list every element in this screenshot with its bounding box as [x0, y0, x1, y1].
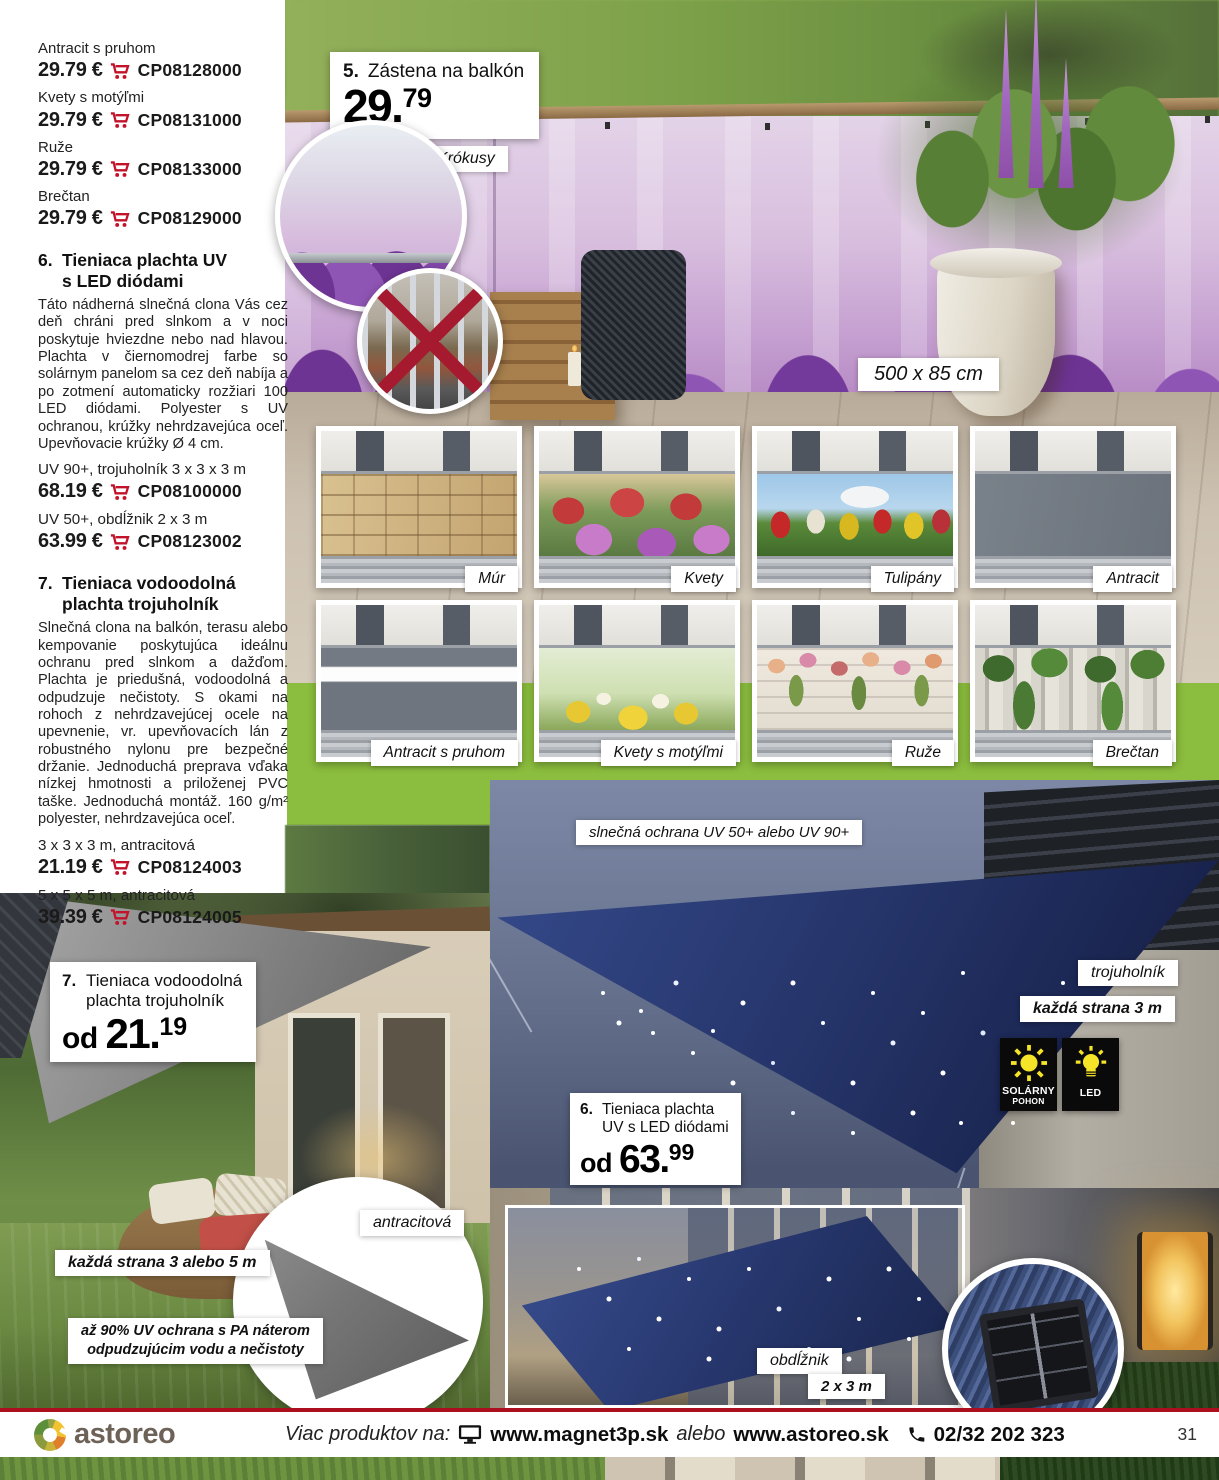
thumb-screen-antracit [975, 471, 1171, 556]
uv-protection-label: až 90% UV ochrana s PA náteromodpudzujúc… [68, 1318, 323, 1364]
uv-range-label: slnečná ochrana UV 50+ alebo UV 90+ [576, 820, 862, 845]
price: 63.99 € [38, 530, 103, 553]
astoreo-logo-icon [34, 1419, 66, 1451]
sliver-dark-grass [1000, 1457, 1219, 1480]
price: 68.19 € [38, 480, 103, 503]
footer-prefix: Viac produktov na: [285, 1423, 450, 1446]
price: 29.79 € [38, 207, 103, 230]
shape-label-trojuholnik: trojuholník [1078, 960, 1178, 986]
hero-candle [568, 352, 581, 386]
thumb-tulipany: Tulipány [752, 426, 958, 588]
price-row: 63.99 € CP08123002 [38, 530, 288, 553]
photo-led-sail-dusk: slnečná ochrana UV 50+ alebo UV 90+ troj… [490, 780, 1219, 1408]
price: od 63.99 [580, 1141, 729, 1178]
thumb-kvety-s-motylmi: Kvety s motýľmi [534, 600, 740, 762]
thumb-screen-tulipany [757, 471, 953, 556]
left-text-column: Antracit s pruhom 29.79 € CP08128000 Kve… [38, 40, 288, 936]
price: od 21.19 [62, 1014, 242, 1054]
solar-panel [979, 1298, 1099, 1408]
thumb-house-top [975, 605, 1171, 645]
thumb-antracit-s-pruhom: Antracit s pruhom [316, 600, 522, 762]
thumb-screen-kvety [539, 471, 735, 556]
anthracite-triangle-sail [247, 1217, 469, 1407]
section-title: 7. Tieniaca vodoodolnáplachta trojuholní… [38, 573, 288, 615]
cart-icon[interactable] [110, 111, 131, 129]
thumb-kvety: Kvety [534, 426, 740, 588]
product-title: Tieniaca plachtaUV s LED diódami [602, 1101, 729, 1138]
phone-icon [907, 1425, 926, 1444]
variant-spec: UV 90+, trojuholník 3 x 3 x 3 m [38, 461, 288, 478]
product-number: 7. [62, 971, 86, 1011]
price-badge-7: 7. Tieniaca vodoodolnáplachta trojuholní… [50, 962, 256, 1062]
section-description: Slnečná clona na balkón, terasu alebo ke… [38, 620, 288, 828]
color-label-antracitova: antracitová [360, 1210, 464, 1236]
thumb-screen-brectan [975, 645, 1171, 730]
price-badge-6: 6. Tieniaca plachtaUV s LED diódami od 6… [570, 1093, 741, 1185]
thumb-antracit: Antracit [970, 426, 1176, 588]
price: 39.39 € [38, 906, 103, 929]
price: 29.79 € [38, 59, 103, 82]
led-lights [508, 1208, 510, 1210]
phone-number[interactable]: 02/32 202 323 [934, 1423, 1065, 1447]
thumb-house-top [539, 605, 735, 645]
product-code: CP08128000 [138, 60, 242, 81]
variant-name: Brečtan [38, 188, 288, 205]
shape-label-obdlznik: obdĺžnik [757, 1348, 842, 1374]
cart-icon[interactable] [110, 858, 131, 876]
thumb-mur: Múr [316, 426, 522, 588]
thumb-screen-motyle [539, 645, 735, 730]
cart-icon[interactable] [110, 908, 131, 926]
thumb-screen-mur [321, 471, 517, 556]
size-label-500x85: 500 x 85 cm [858, 358, 999, 391]
inset-rectangle-led-sail [505, 1205, 965, 1408]
thumb-screen-pruhom [321, 645, 517, 730]
thumb-house-top [539, 431, 735, 471]
thumb-label: Antracit s pruhom [371, 740, 518, 766]
price-row: 39.39 € CP08124005 [38, 906, 288, 929]
variant-spec: 5 x 5 x 5 m, antracitová [38, 887, 288, 904]
website-link-magnet3p[interactable]: www.magnet3p.sk [490, 1423, 668, 1447]
product-code: CP08123002 [138, 531, 242, 552]
led-lights [490, 860, 492, 862]
section-6: 6. Tieniaca plachta UVs LED diódami Táto… [38, 250, 288, 553]
page-number: 31 [1178, 1424, 1197, 1445]
variant-spec: UV 50+, obdĺžnik 2 x 3 m [38, 511, 288, 528]
catalog-page: 5.Zástena na balkón 29.79 Krókusy 500 x … [0, 0, 1219, 1480]
section-title: 6. Tieniaca plachta UVs LED diódami [38, 250, 288, 292]
price: 29.79 € [38, 158, 103, 181]
product-code: CP08131000 [138, 110, 242, 131]
section-7: 7. Tieniaca vodoodolnáplachta trojuholní… [38, 573, 288, 928]
variant-spec: 3 x 3 x 3 m, antracitová [38, 837, 288, 854]
brand-logo[interactable]: astoreo [34, 1418, 175, 1451]
led-badge: LED [1062, 1038, 1119, 1111]
thumb-house-top [321, 605, 517, 645]
solar-badge-text: SOLÁRNYPOHON [1002, 1085, 1055, 1107]
variant-name: Ruže [38, 139, 288, 156]
thumb-label: Kvety s motýľmi [601, 740, 736, 766]
glowing-lantern [1137, 1232, 1213, 1350]
product-code: CP08129000 [138, 208, 242, 229]
footer-alebo: alebo [676, 1423, 725, 1446]
next-page-sliver [0, 1457, 1219, 1480]
product-title: Zástena na balkón [368, 61, 524, 82]
thumb-label: Ruže [892, 740, 954, 766]
product-code: CP08124003 [138, 857, 242, 878]
led-bulb-icon [1072, 1044, 1110, 1084]
cart-icon[interactable] [110, 160, 131, 178]
thumb-ruze: Ruže [752, 600, 958, 762]
product-code: CP08124005 [138, 907, 242, 928]
price: 29.79 € [38, 109, 103, 132]
size-label-3-or-5m: každá strana 3 alebo 5 m [55, 1250, 270, 1276]
solar-power-badge: SOLÁRNYPOHON [1000, 1038, 1057, 1111]
hero-mesh-chair [581, 250, 686, 400]
cart-icon[interactable] [110, 210, 131, 228]
thumb-house-top [321, 431, 517, 471]
variant-name: Kvety s motýľmi [38, 89, 288, 106]
side-label-3m: každá strana 3 m [1020, 996, 1175, 1022]
cart-icon[interactable] [110, 62, 131, 80]
section-description: Táto nádherná slnečná clona Vás cez deň … [38, 297, 288, 453]
variant-name: Antracit s pruhom [38, 40, 288, 57]
footer: astoreo Viac produktov na: www.magnet3p.… [0, 1412, 1219, 1457]
price-list: Antracit s pruhom 29.79 € CP08128000 Kve… [38, 40, 288, 230]
product-title: Tieniaca vodoodolnáplachta trojuholník [86, 971, 242, 1011]
thumb-brectan: Brečtan [970, 600, 1176, 762]
thumb-label: Múr [465, 566, 518, 592]
footer-contact-row: Viac produktov na: www.magnet3p.sk alebo… [285, 1412, 1065, 1457]
website-link-astoreo[interactable]: www.astoreo.sk [733, 1423, 888, 1447]
price-row: 29.79 € CP08133000 [38, 158, 288, 181]
price-row: 68.19 € CP08100000 [38, 480, 288, 503]
product-code: CP08100000 [138, 481, 242, 502]
thumb-label: Brečtan [1093, 740, 1172, 766]
price: 21.19 € [38, 856, 103, 879]
price-row: 21.19 € CP08124003 [38, 856, 288, 879]
sun-icon [1010, 1044, 1048, 1082]
thumb-house-top [757, 605, 953, 645]
thumb-screen-ruze [757, 645, 953, 730]
price-row: 29.79 € CP08131000 [38, 109, 288, 132]
product-number: 5. [343, 61, 359, 82]
inset-no-privacy-view [357, 268, 503, 414]
product-number: 6. [580, 1101, 602, 1138]
sail-rope [490, 954, 532, 1033]
cart-icon[interactable] [110, 533, 131, 551]
monitor-icon [458, 1424, 482, 1445]
trees-strip [285, 825, 490, 895]
thumb-house-top [975, 431, 1171, 471]
thumb-house-top [757, 431, 953, 471]
brand-name: astoreo [74, 1418, 175, 1451]
thumb-label: Kvety [671, 566, 736, 592]
price-row: 29.79 € CP08129000 [38, 207, 288, 230]
size-label-2x3: 2 x 3 m [808, 1374, 885, 1399]
price-row: 29.79 € CP08128000 [38, 59, 288, 82]
cart-icon[interactable] [110, 483, 131, 501]
led-badge-text: LED [1080, 1087, 1102, 1099]
photo-gray-sail-garden: 7. Tieniaca vodoodolnáplachta trojuholní… [0, 893, 490, 1408]
thumb-label: Antracit [1093, 566, 1172, 592]
thumb-label: Tulipány [871, 566, 954, 592]
sliver-interior [605, 1457, 1000, 1480]
sliver-grass [0, 1457, 605, 1480]
product-code: CP08133000 [138, 159, 242, 180]
hero-plant-pot [937, 258, 1055, 416]
